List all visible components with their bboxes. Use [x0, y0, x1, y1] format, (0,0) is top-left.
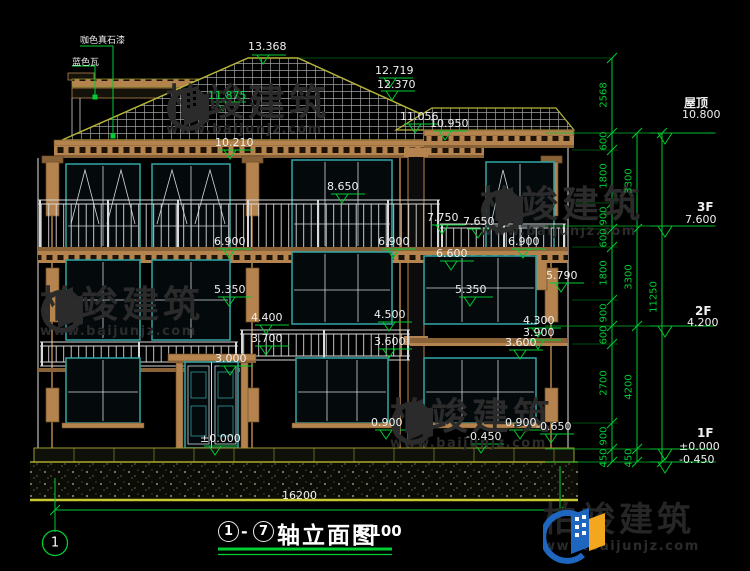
title-axis-circle: 1: [218, 521, 239, 542]
level-annotation: 11.875: [208, 89, 247, 102]
chain-dim: 2700: [599, 370, 610, 395]
level-annotation: 12.370: [377, 78, 416, 91]
chain-dim: 450: [599, 448, 610, 467]
watermark: 柏竣建筑 www.baijunjz.com: [480, 186, 644, 239]
chain-dim: 900: [599, 426, 610, 445]
chain-dim: 600: [599, 325, 610, 344]
level-annotation: 3.600: [374, 335, 406, 348]
total-width-dim: 16200: [282, 489, 317, 502]
level-annotation: 3.600: [505, 336, 537, 349]
cad-elevation-screenshot: 柏竣建筑 www.baijunjz.com 柏竣建筑 www.baijunjz.…: [0, 0, 750, 571]
level-annotation: 6.600: [436, 247, 468, 260]
floor-name: 1F: [697, 426, 714, 440]
level-annotation: 0.900: [371, 416, 403, 429]
brand-logo-icon: [543, 503, 619, 565]
chain-dim: 3300: [624, 168, 635, 193]
level-annotation: 10.950: [430, 117, 469, 130]
level-annotation: 5.350: [214, 283, 246, 296]
chain-dim: 1800: [599, 163, 610, 188]
floor-elev: ±0.000: [679, 440, 720, 453]
material-label: 蓝色瓦: [72, 55, 99, 68]
watermark-logo-icon: [166, 84, 210, 136]
level-annotation: 4.500: [374, 308, 406, 321]
chain-dim: 3300: [624, 264, 635, 289]
level-annotation: 6.900: [378, 235, 410, 248]
level-annotation: ±0.000: [200, 432, 241, 445]
chain-dim: 1800: [599, 260, 610, 285]
chain-dim: 2568: [599, 82, 610, 107]
chain-dim: 450: [624, 448, 635, 467]
floor-elev: 7.600: [685, 213, 717, 226]
level-annotation: 3.700: [251, 332, 283, 345]
level-annotation: 13.368: [248, 40, 287, 53]
chain-dim: 4200: [624, 374, 635, 399]
level-annotation: 3.000: [215, 352, 247, 365]
title-dash: -: [241, 522, 248, 541]
level-annotation: 12.719: [375, 64, 414, 77]
floor-elev: 10.800: [682, 108, 721, 121]
level-annotation: 7.650: [463, 215, 495, 228]
level-annotation: 8.650: [327, 180, 359, 193]
level-annotation: 5.350: [455, 283, 487, 296]
watermark-logo-icon: [40, 286, 84, 338]
footer-brand-block: 柏竣建筑 www.baijunjz.com: [543, 503, 700, 554]
level-annotation: -0.450: [466, 430, 501, 443]
title-axis-circle: 7: [253, 521, 274, 542]
material-label: 咖色真石漆: [80, 33, 125, 46]
watermark: 柏竣建筑 www.baijunjz.com: [166, 84, 330, 137]
chain-dim: 900: [599, 206, 610, 225]
floor-name: 3F: [697, 200, 714, 214]
level-annotation: 6.900: [214, 235, 246, 248]
drawing-scale: 1:100: [354, 522, 402, 540]
axis-bubble-number: 1: [51, 536, 59, 551]
level-annotation: 0.900: [505, 416, 537, 429]
chain-dim: 900: [599, 303, 610, 322]
chain-dim: 600: [599, 131, 610, 150]
level-annotation: 10.210: [215, 136, 254, 149]
level-annotation: 7.750: [427, 211, 459, 224]
watermark: 柏竣建筑 www.baijunjz.com: [40, 286, 204, 339]
level-annotation: 5.790: [546, 269, 578, 282]
floor-elev: -0.450: [679, 453, 714, 466]
watermark-logo-icon: [480, 186, 524, 238]
floor-elev: 4.200: [687, 316, 719, 329]
chain-dim: 11250: [649, 281, 660, 313]
level-annotation: 4.400: [251, 311, 283, 324]
chain-dim: 600: [599, 228, 610, 247]
level-annotation: 6.900: [508, 235, 540, 248]
level-annotation: -0.650: [536, 420, 571, 433]
